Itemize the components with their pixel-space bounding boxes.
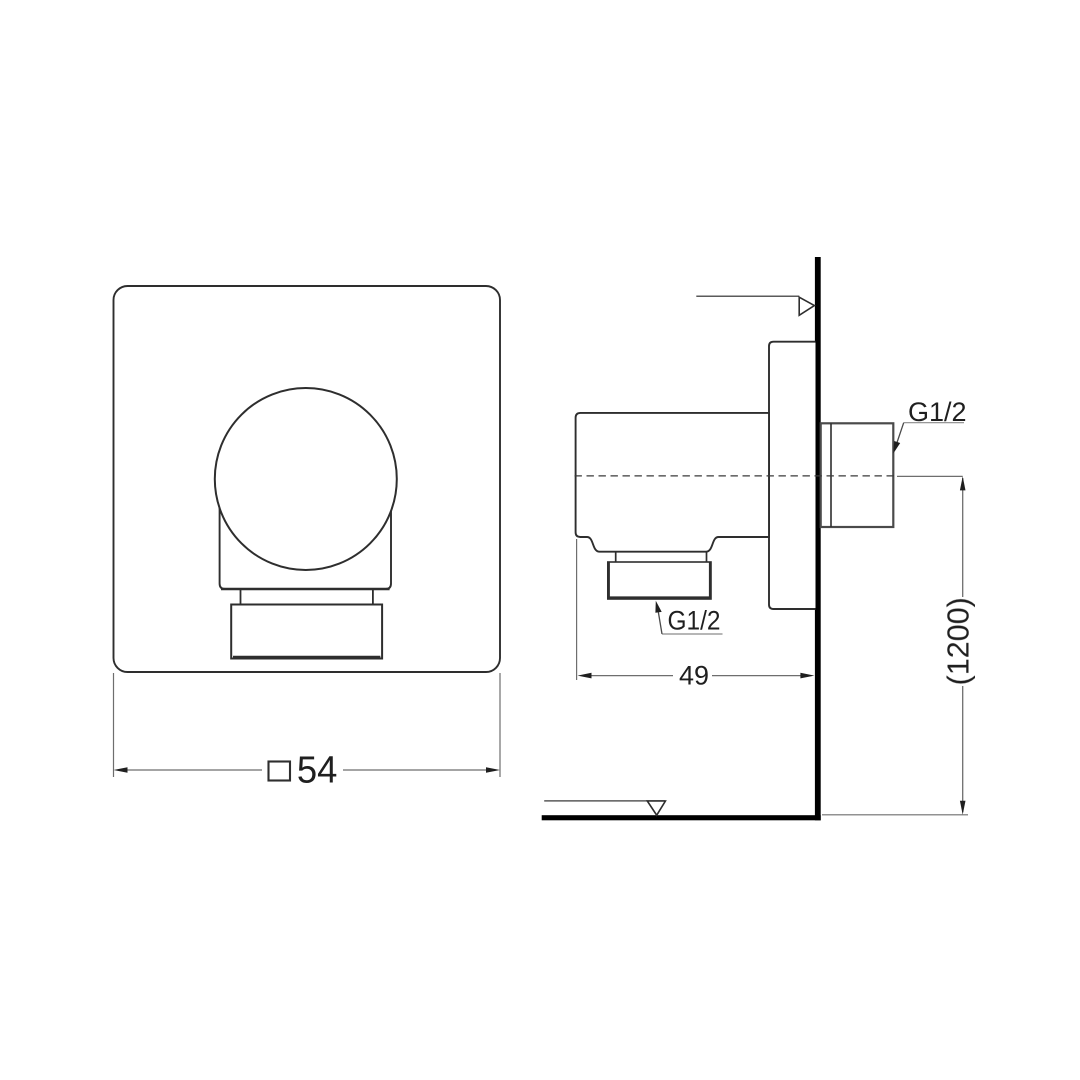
svg-text:(1200): (1200) — [942, 597, 976, 685]
svg-text:49: 49 — [679, 661, 709, 691]
svg-text:G1/2: G1/2 — [668, 606, 721, 636]
svg-text:54: 54 — [297, 750, 338, 792]
svg-text:G1/2: G1/2 — [908, 397, 967, 427]
